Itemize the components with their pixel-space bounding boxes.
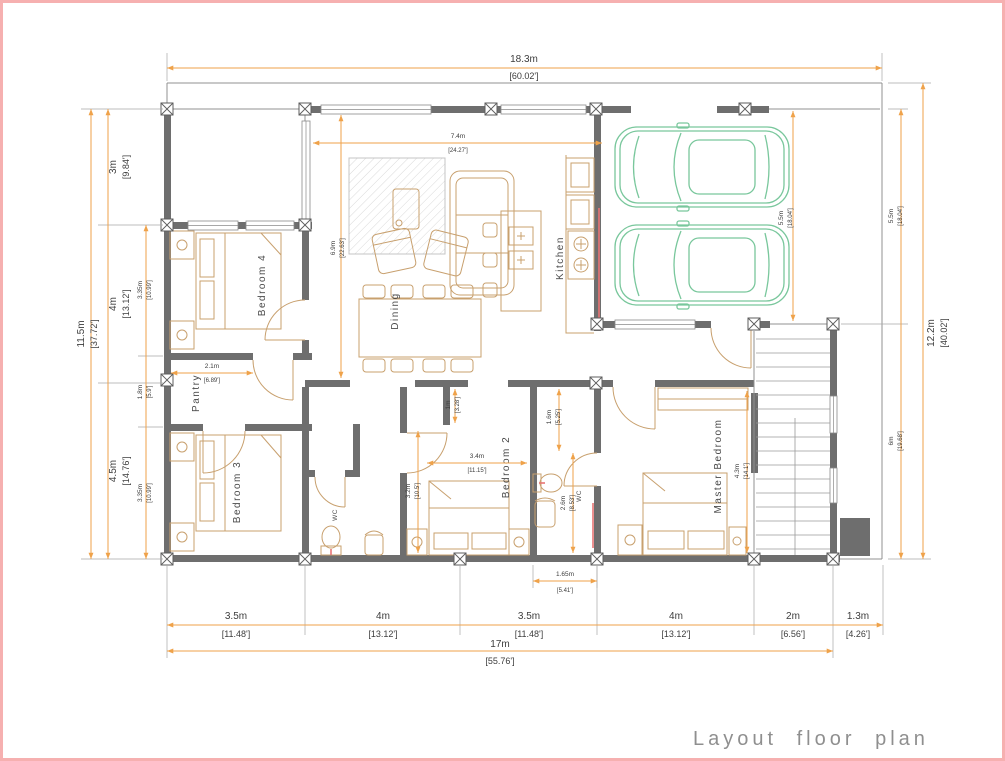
dim-text: [40.02'] bbox=[939, 318, 949, 347]
dim-text: [9.84'] bbox=[121, 155, 131, 179]
rug bbox=[349, 158, 445, 254]
pillow bbox=[434, 533, 468, 549]
columns bbox=[161, 103, 839, 565]
nightstand bbox=[407, 529, 427, 555]
dim-text: [11.48'] bbox=[515, 629, 544, 639]
dim-text: [10.99'] bbox=[147, 280, 153, 300]
dim-text: 1.65m bbox=[556, 571, 574, 578]
label-bedroom3: Bedroom 3 bbox=[232, 461, 243, 523]
dim-text: 2.6m bbox=[560, 496, 567, 510]
dining-furniture bbox=[359, 285, 481, 372]
label-pantry: Pantry bbox=[191, 374, 202, 412]
dim-text: [22.63'] bbox=[340, 238, 346, 258]
dim-text: 3.5m bbox=[225, 611, 247, 622]
sofa-vertical bbox=[450, 171, 514, 295]
door-wc1 bbox=[315, 477, 345, 507]
dim-text: [13.12'] bbox=[661, 629, 690, 639]
label-wc1: WC bbox=[332, 509, 339, 521]
wc2-fixtures bbox=[533, 474, 562, 527]
bedroom3-furniture bbox=[170, 433, 281, 551]
dim-text: 6.9m bbox=[330, 241, 337, 255]
dim-text: 1.3m bbox=[847, 611, 869, 622]
floor-plan-drawing: Bedroom 4 Pantry Bedroom 3 Dining Kitche… bbox=[3, 3, 1005, 761]
dim-text: [24.27'] bbox=[448, 148, 468, 154]
dim-text: 6m bbox=[888, 436, 895, 445]
staircase bbox=[754, 331, 830, 555]
floor-plan-page: Bedroom 4 Pantry Bedroom 3 Dining Kitche… bbox=[0, 0, 1005, 761]
dim-text: 4m bbox=[376, 611, 390, 622]
windows bbox=[188, 105, 837, 503]
label-bedroom2: Bedroom 2 bbox=[501, 436, 512, 498]
dim-top-overall: 18.3m [60.02'] bbox=[167, 53, 882, 81]
dim-text: 2m bbox=[786, 611, 800, 622]
sink bbox=[535, 498, 555, 527]
dim-text: [11.48'] bbox=[222, 629, 251, 639]
dim-text: [13.12'] bbox=[121, 289, 131, 318]
dim-text: [55.76'] bbox=[485, 656, 514, 666]
living-room-furniture bbox=[349, 158, 514, 295]
label-dining: Dining bbox=[390, 292, 401, 329]
door-bedroom4 bbox=[265, 300, 305, 340]
dim-text: 3.4m bbox=[470, 453, 484, 460]
dim-text: [6.89'] bbox=[204, 378, 220, 384]
window bbox=[188, 221, 238, 230]
dim-text: 2.1m bbox=[205, 363, 219, 370]
dim-text: [10.5'] bbox=[415, 483, 421, 499]
dim-left: 11.5m [37.72'] 3m [9.84'] 4m [13.12'] 4.… bbox=[76, 109, 163, 559]
dim-text: 1.8m bbox=[137, 385, 144, 399]
dim-text: 5.5m bbox=[778, 211, 785, 225]
dim-bottom-total: 17m [55.76'] bbox=[167, 639, 833, 666]
dim-text: [18.04'] bbox=[898, 206, 904, 226]
nightstand bbox=[170, 321, 194, 349]
stool bbox=[483, 253, 497, 267]
master-bedroom-furniture bbox=[618, 388, 748, 555]
dim-text: [37.72'] bbox=[89, 319, 99, 348]
dim-text: 4m bbox=[108, 297, 119, 311]
bed bbox=[429, 481, 509, 555]
stove bbox=[568, 231, 594, 279]
site-outline bbox=[167, 83, 882, 559]
dim-right: 5.5m [18.04'] 6m [19.68'] 12.2m [40.02'] bbox=[841, 83, 949, 559]
dim-text: 1.6m bbox=[546, 410, 553, 424]
dim-text: [14.1'] bbox=[744, 463, 750, 479]
dim-text: 18.3m bbox=[510, 54, 538, 65]
nightstand bbox=[170, 433, 194, 461]
dim-interior: 7.4m [24.27'] 6.9m [22.63'] 5.5m [18.04'… bbox=[171, 111, 794, 594]
nightstand bbox=[729, 527, 746, 555]
nightstand bbox=[170, 523, 194, 551]
dim-text: 4m bbox=[669, 611, 683, 622]
window bbox=[321, 105, 431, 114]
pillow bbox=[472, 533, 506, 549]
dim-text: 3m bbox=[108, 160, 119, 174]
dim-text: [5.25'] bbox=[556, 409, 562, 425]
exterior-block bbox=[840, 518, 870, 556]
label-wc2: WC bbox=[576, 490, 583, 502]
window bbox=[246, 221, 294, 230]
dim-text: 4.3m bbox=[734, 464, 741, 478]
dim-text: [18.04'] bbox=[788, 208, 794, 228]
nightstand bbox=[618, 525, 642, 555]
dim-text: [19.68'] bbox=[898, 431, 904, 451]
window bbox=[302, 121, 310, 219]
door-pantry bbox=[253, 360, 293, 400]
dim-text: [6.56'] bbox=[781, 629, 805, 639]
window bbox=[830, 396, 837, 433]
dim-text: [4.26'] bbox=[846, 629, 870, 639]
label-master-bedroom: Master Bedroom bbox=[713, 419, 724, 514]
pillow bbox=[200, 239, 214, 277]
dim-text: [60.02'] bbox=[509, 71, 538, 81]
dim-text: 4.5m bbox=[108, 460, 119, 482]
nightstand bbox=[509, 529, 529, 555]
dining-table bbox=[359, 299, 481, 357]
door-bedroom2 bbox=[407, 433, 447, 473]
dim-text: [5.41'] bbox=[557, 588, 573, 594]
label-kitchen: Kitchen bbox=[555, 236, 566, 280]
car-2 bbox=[615, 221, 789, 309]
dim-text: 1m bbox=[445, 400, 452, 409]
dim-text: 3.35m bbox=[137, 484, 144, 502]
pillow bbox=[688, 531, 724, 549]
stool bbox=[483, 223, 497, 237]
dim-text: [5.9'] bbox=[147, 385, 153, 398]
dim-text: 7.4m bbox=[451, 133, 465, 140]
dim-text: [3.28'] bbox=[455, 397, 461, 413]
dim-text: 11.5m bbox=[76, 320, 87, 347]
doors bbox=[203, 300, 751, 507]
window bbox=[615, 320, 695, 329]
window bbox=[830, 468, 837, 503]
dim-text: [11.15'] bbox=[467, 468, 486, 474]
dim-text: 12.2m bbox=[926, 319, 937, 347]
door-master-bedroom bbox=[613, 387, 655, 429]
cars bbox=[615, 123, 789, 309]
car-1 bbox=[615, 123, 789, 211]
porch-outline bbox=[167, 109, 305, 225]
pillow bbox=[648, 531, 684, 549]
laundry-chair bbox=[365, 531, 383, 555]
dim-text: [14.76'] bbox=[121, 456, 131, 485]
dim-text: [13.12'] bbox=[368, 629, 397, 639]
nightstand bbox=[170, 231, 194, 259]
dim-text: [8.53'] bbox=[570, 495, 576, 511]
drawing-title: Layout floor plan bbox=[693, 728, 929, 750]
window bbox=[501, 105, 586, 114]
dim-text: 5.5m bbox=[888, 209, 895, 223]
pillow bbox=[200, 281, 214, 319]
dim-text: 3.2m bbox=[405, 484, 412, 498]
dim-text: 17m bbox=[490, 639, 509, 650]
kitchen-furniture bbox=[483, 155, 594, 333]
pillow bbox=[200, 483, 214, 521]
label-bedroom4: Bedroom 4 bbox=[257, 254, 268, 316]
door-hall-garage bbox=[711, 328, 751, 368]
dim-bottom-segments: 3.5m [11.48'] 4m [13.12'] 3.5m [11.48'] … bbox=[167, 565, 883, 658]
dim-text: 3.35m bbox=[137, 281, 144, 299]
door-wc2 bbox=[564, 453, 597, 486]
room-labels: Bedroom 4 Pantry Bedroom 3 Dining Kitche… bbox=[191, 236, 724, 523]
dim-text: [10.99'] bbox=[147, 483, 153, 503]
dim-text: 3.5m bbox=[518, 611, 540, 622]
wc1-fixtures bbox=[321, 526, 383, 555]
toilet bbox=[533, 474, 562, 492]
